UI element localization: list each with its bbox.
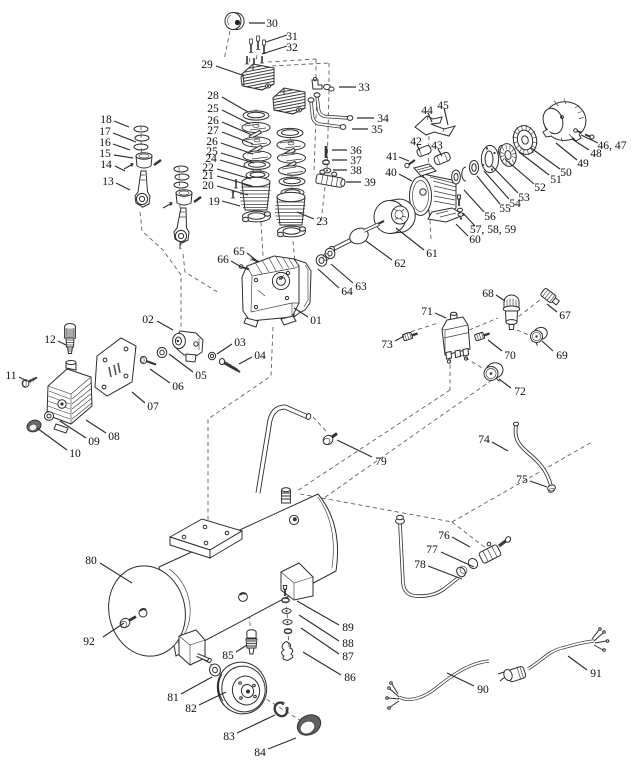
svg-text:12: 12 — [44, 333, 56, 346]
svg-text:29: 29 — [201, 58, 213, 71]
svg-text:45: 45 — [437, 99, 449, 112]
svg-text:05: 05 — [195, 369, 207, 382]
svg-text:78: 78 — [414, 558, 426, 571]
svg-text:39: 39 — [364, 176, 376, 189]
svg-text:77: 77 — [426, 543, 438, 556]
svg-text:63: 63 — [355, 280, 367, 293]
svg-text:32: 32 — [286, 41, 298, 54]
svg-text:62: 62 — [394, 257, 406, 270]
svg-text:71: 71 — [421, 305, 433, 318]
svg-text:81: 81 — [167, 691, 179, 704]
svg-text:44: 44 — [421, 104, 433, 117]
svg-text:84: 84 — [254, 746, 266, 759]
svg-text:11: 11 — [5, 369, 16, 382]
svg-text:50: 50 — [560, 166, 572, 179]
svg-text:80: 80 — [85, 554, 97, 567]
svg-text:19: 19 — [208, 195, 220, 208]
svg-text:40: 40 — [385, 166, 397, 179]
svg-text:91: 91 — [590, 667, 602, 680]
svg-text:23: 23 — [316, 215, 328, 228]
svg-text:51: 51 — [550, 173, 562, 186]
svg-text:48: 48 — [590, 147, 602, 160]
svg-text:17: 17 — [99, 125, 111, 138]
svg-text:76: 76 — [438, 529, 450, 542]
svg-text:75: 75 — [516, 473, 528, 486]
svg-text:02: 02 — [142, 313, 154, 326]
svg-text:54: 54 — [509, 197, 521, 210]
svg-text:03: 03 — [234, 336, 246, 349]
svg-text:74: 74 — [478, 433, 490, 446]
svg-text:55: 55 — [499, 202, 511, 215]
svg-text:38: 38 — [350, 164, 362, 177]
svg-text:79: 79 — [375, 455, 387, 468]
svg-text:09: 09 — [88, 435, 100, 448]
svg-text:52: 52 — [534, 181, 546, 194]
svg-text:67: 67 — [559, 309, 571, 322]
svg-text:70: 70 — [504, 349, 516, 362]
svg-text:83: 83 — [223, 730, 235, 743]
svg-text:30: 30 — [266, 17, 278, 30]
svg-text:69: 69 — [556, 349, 568, 362]
svg-text:86: 86 — [344, 671, 356, 684]
svg-text:13: 13 — [102, 175, 114, 188]
svg-text:42: 42 — [410, 135, 422, 148]
svg-text:18: 18 — [100, 113, 112, 126]
svg-text:90: 90 — [477, 683, 489, 696]
svg-text:07: 07 — [147, 400, 159, 413]
svg-text:06: 06 — [172, 380, 184, 393]
svg-text:35: 35 — [371, 123, 383, 136]
svg-text:88: 88 — [342, 637, 354, 650]
svg-text:60: 60 — [469, 233, 481, 246]
svg-text:65: 65 — [233, 245, 245, 258]
svg-text:64: 64 — [341, 285, 353, 298]
svg-text:87: 87 — [342, 650, 354, 663]
svg-text:68: 68 — [482, 287, 494, 300]
svg-text:46, 47: 46, 47 — [598, 139, 627, 152]
svg-text:33: 33 — [358, 81, 370, 94]
svg-text:66: 66 — [217, 253, 229, 266]
svg-text:49: 49 — [577, 157, 589, 170]
svg-text:41: 41 — [386, 150, 398, 163]
svg-text:85: 85 — [222, 649, 234, 662]
svg-text:89: 89 — [342, 621, 354, 634]
svg-text:43: 43 — [431, 139, 443, 152]
svg-text:08: 08 — [108, 430, 120, 443]
svg-text:72: 72 — [514, 385, 526, 398]
svg-text:56: 56 — [484, 210, 496, 223]
svg-text:20: 20 — [202, 179, 214, 192]
svg-text:92: 92 — [83, 635, 95, 648]
svg-text:04: 04 — [254, 349, 266, 362]
svg-text:01: 01 — [310, 314, 322, 327]
svg-text:10: 10 — [69, 447, 81, 460]
svg-text:28: 28 — [207, 89, 219, 102]
svg-text:73: 73 — [381, 338, 393, 351]
svg-text:61: 61 — [426, 247, 438, 260]
svg-text:82: 82 — [185, 702, 197, 715]
